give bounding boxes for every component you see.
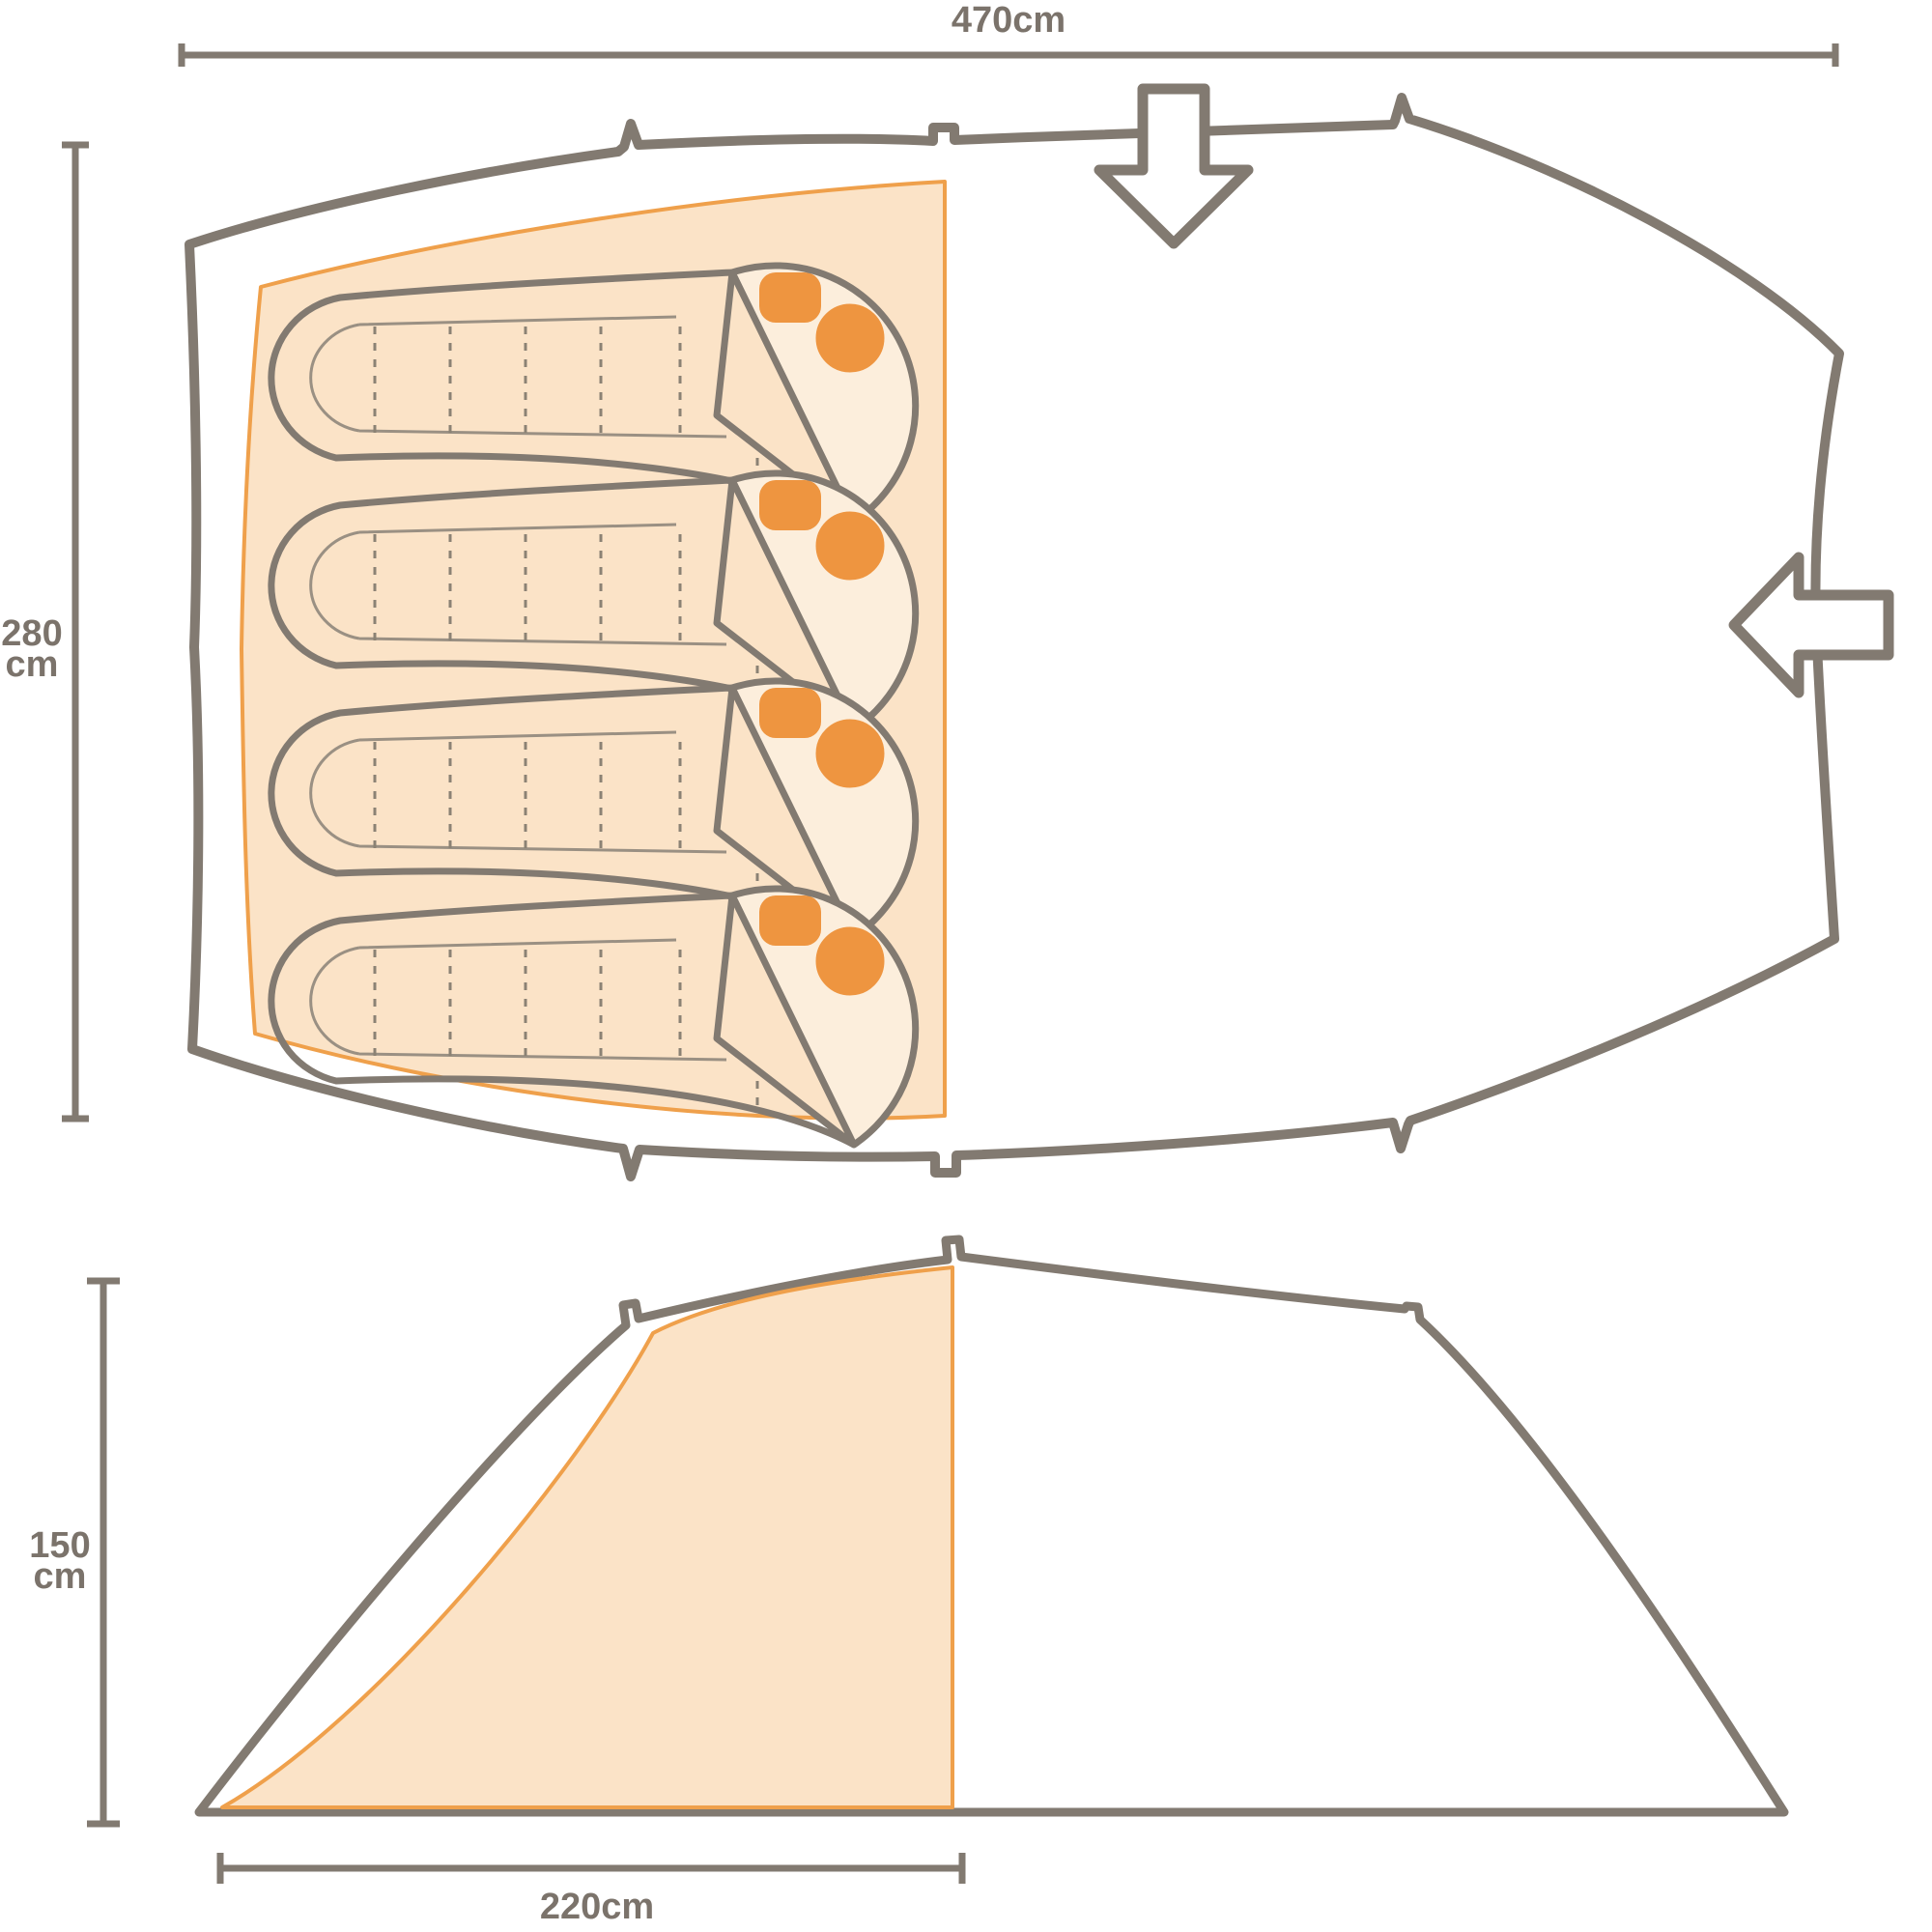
width-dimension-line bbox=[182, 43, 1835, 67]
depth-dimension-label-unit: cm bbox=[6, 644, 59, 685]
pillow-icon bbox=[759, 895, 821, 946]
inner-width-dimension-line bbox=[220, 1853, 962, 1884]
inner-width-dimension: 220cm bbox=[220, 1853, 962, 1927]
depth-dimension: 280 cm bbox=[1, 145, 89, 1119]
width-dimension: 470cm bbox=[182, 0, 1835, 67]
height-dimension-line bbox=[87, 1281, 120, 1824]
top-view: 470cm 280 cm bbox=[1, 0, 1889, 1177]
width-dimension-label: 470cm bbox=[952, 0, 1065, 41]
pillow-icon bbox=[759, 688, 821, 738]
side-sleeping-area bbox=[222, 1267, 952, 1807]
pillow-icon bbox=[759, 272, 821, 323]
tent-spec-diagram: 470cm 280 cm 150 cm bbox=[0, 0, 1932, 1932]
depth-dimension-line bbox=[62, 145, 89, 1119]
inner-width-dimension-label: 220cm bbox=[540, 1887, 654, 1927]
side-view: 150 cm 220cm bbox=[29, 1239, 1784, 1927]
height-dimension-label-unit: cm bbox=[34, 1556, 87, 1597]
tent-floorplan-svg: 470cm 280 cm 150 cm bbox=[0, 0, 1932, 1932]
height-dimension: 150 cm bbox=[29, 1281, 120, 1824]
pillow-icon bbox=[759, 480, 821, 530]
